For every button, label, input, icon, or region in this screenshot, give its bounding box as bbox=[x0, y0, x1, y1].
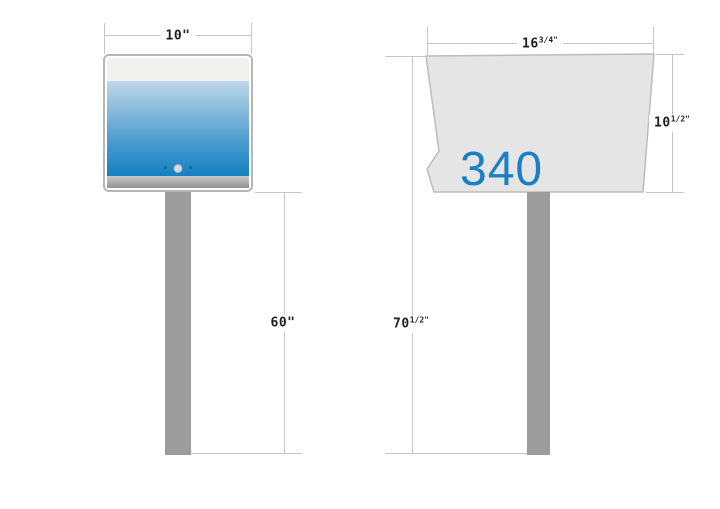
side-boxheight-dimension-label: 101/2" bbox=[649, 115, 695, 132]
side-boxheight-extension-line-top bbox=[656, 54, 684, 55]
post-side-view bbox=[527, 192, 550, 455]
side-totalheight-extension-line-bottom bbox=[385, 453, 527, 454]
side-width-dimension-label: 163/4" bbox=[517, 36, 563, 53]
side-width-extension-line-right bbox=[653, 27, 654, 54]
side-totalheight-dimension-line bbox=[412, 56, 413, 453]
mailbox-side-view-shape bbox=[0, 0, 720, 509]
side-totalheight-dimension-label: 701/2" bbox=[388, 316, 434, 333]
mailbox-dimension-diagram: 10" 60" 340 163/4" 101/2" 701/2" bbox=[0, 0, 720, 509]
side-width-extension-line-left bbox=[427, 27, 428, 56]
side-boxheight-extension-line-bottom bbox=[646, 192, 684, 193]
mailbox-number: 340 bbox=[460, 146, 543, 194]
side-totalheight-extension-line-top bbox=[385, 56, 426, 57]
